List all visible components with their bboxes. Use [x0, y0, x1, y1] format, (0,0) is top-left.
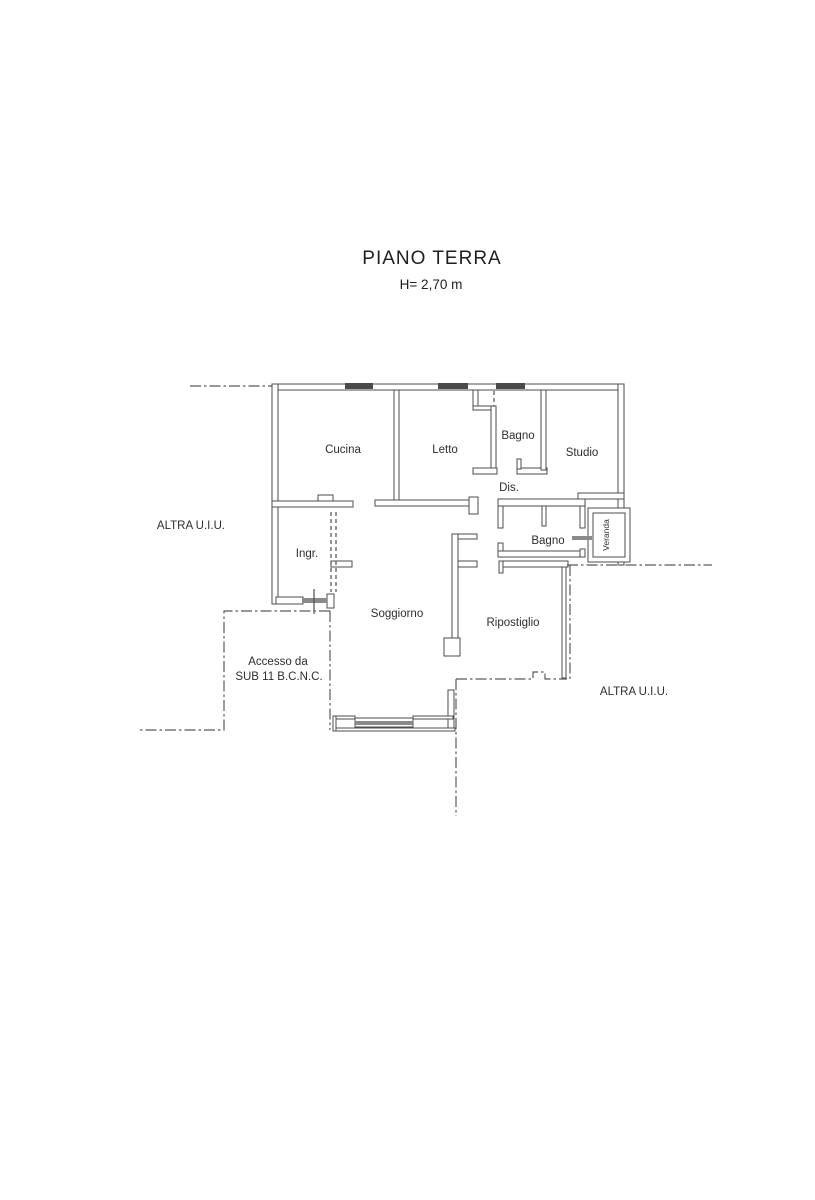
wall-bagno2-bottom [498, 551, 585, 557]
room-label-bagno-top: Bagno [501, 430, 534, 442]
wall-soggiorno-ripostiglio [452, 534, 458, 638]
wall-soggiorno-bottom-left-end [333, 716, 336, 731]
wall-studio-bottom [578, 493, 624, 499]
wall-ripostiglio-jamb [458, 561, 477, 567]
annotation-altra-uiu-left: ALTRA U.I.U. [157, 520, 225, 532]
wall-bagno2-tick [542, 506, 546, 526]
wall-soggiorno-right-bottom [448, 690, 454, 731]
room-label-soggiorno: Soggiorno [371, 608, 423, 620]
wall-ripostiglio-right [562, 567, 566, 678]
room-label-ingresso: Ingr. [296, 548, 318, 560]
wall-cucina-door-jamb [318, 495, 333, 501]
wall-bagno-studio [541, 390, 546, 470]
wall-bagno2-left-upper [498, 506, 503, 528]
walls [272, 384, 630, 731]
wall-ingresso-bottom [276, 597, 303, 604]
boundary-lines [140, 386, 712, 816]
height-note: H= 2,70 m [400, 277, 463, 292]
wall-cucina-bottom [272, 501, 353, 507]
wall-soggiorno-bottom-outer [333, 728, 455, 731]
room-label-studio: Studio [566, 447, 599, 459]
annotation-altra-uiu-right: ALTRA U.I.U. [600, 686, 668, 698]
window-soggiorno-bar [355, 721, 413, 725]
wall-letto-bottom [375, 500, 477, 506]
room-label-bagno-bottom: Bagno [531, 535, 564, 547]
window-bagno [496, 383, 525, 389]
floor-plan-page: PIANO TERRA H= 2,70 m [0, 0, 815, 1200]
window-veranda-bar [572, 536, 592, 540]
room-label-letto: Letto [432, 444, 458, 456]
annotation-accesso-line1: Accesso da [248, 656, 308, 668]
wall-pillar [444, 638, 460, 656]
wall-left [272, 384, 278, 604]
wall-bagno2-right-lower [580, 549, 585, 557]
wall-cucina-letto [394, 390, 399, 502]
wall-soggiorno-stub [331, 561, 352, 567]
wall-bagno2-right-upper [580, 506, 585, 528]
wall-ripostiglio-tick [499, 561, 503, 573]
page-title: PIANO TERRA [362, 248, 501, 269]
floor-plan-canvas: PIANO TERRA H= 2,70 m [0, 0, 815, 1200]
wall-letto-bagno [491, 406, 496, 470]
room-label-cucina: Cucina [325, 444, 361, 456]
wall-corridor-jamb [469, 497, 478, 514]
wall-ripostiglio-top [499, 561, 568, 567]
room-label-ripostiglio: Ripostiglio [486, 617, 539, 629]
room-label-veranda: Veranda [601, 519, 611, 551]
room-label-dis: Dis. [499, 482, 519, 494]
wall-soggiorno-bottom-inner-right [413, 716, 453, 719]
annotation-accesso-line2: SUB 11 B.C.N.C. [235, 671, 322, 683]
window-cucina [345, 383, 373, 389]
wall-bagno-bottom-west [473, 468, 497, 474]
wall-bagno-door-jamb [517, 459, 521, 469]
wall-entrance-jamb [327, 594, 334, 608]
window-letto [438, 383, 468, 389]
wall-bagno2-top [498, 499, 585, 506]
boundary-ripostiglio-bottom [456, 672, 567, 679]
